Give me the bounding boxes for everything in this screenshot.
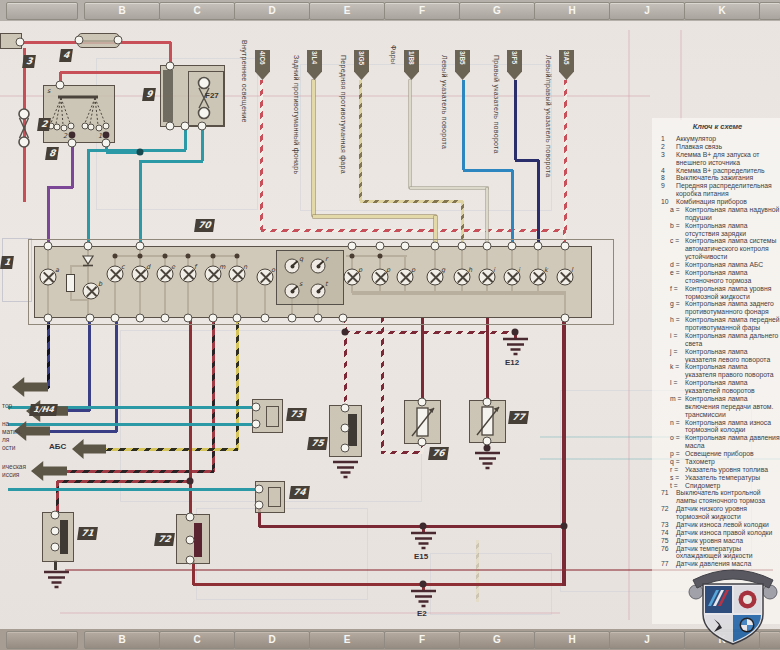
pin-s: s — [299, 281, 302, 288]
pin-k: k — [544, 267, 548, 274]
wire-front-fog — [359, 80, 362, 201]
pin-h: h — [468, 267, 472, 274]
legend-text: Контрольная лампа давления масла — [685, 434, 780, 450]
legend-text: Датчик износа левой колодки — [676, 521, 780, 529]
gauge-t — [311, 284, 326, 299]
wire-rear-fog — [312, 80, 315, 216]
legend-item: m =Контрольная лампа включения передачи … — [670, 395, 780, 419]
terminal — [508, 242, 517, 251]
grid-tab-k: K — [684, 2, 760, 20]
bus-dot — [163, 254, 168, 259]
legend-item: q =Тахометр — [670, 458, 780, 466]
grid-tab-f: F — [384, 2, 460, 20]
wire-run2 — [139, 160, 203, 163]
grid-tab-b: B — [84, 2, 160, 20]
legend-num: 9 — [661, 182, 676, 198]
power-box-bar — [163, 70, 173, 122]
legend-num: l = — [670, 379, 685, 395]
wire-headlamps — [410, 187, 488, 189]
legend-num: m = — [670, 395, 685, 419]
legend-num: k = — [670, 363, 685, 379]
legend-num: s = — [670, 474, 685, 482]
legend-text: Аккумулятор — [676, 135, 780, 143]
junction — [137, 149, 144, 156]
wire-73b — [8, 423, 257, 426]
wire-left-turn — [463, 169, 513, 172]
legend-item: 72Датчик низкого уровня тормозной жидкос… — [661, 505, 780, 521]
pin-s: s — [47, 88, 50, 95]
terminal — [339, 314, 348, 323]
legend-text: Контрольная лампа отсутствия зарядки — [685, 222, 780, 238]
ghost-line — [60, 612, 560, 614]
terminal — [186, 536, 195, 545]
terminal — [51, 543, 60, 552]
wire-71 — [57, 480, 191, 483]
legend-num: 74 — [661, 529, 676, 537]
club-crest-watermark — [686, 556, 780, 648]
legend-item: j =Контрольная лампа указателя левого по… — [670, 348, 780, 364]
legend-num: h = — [670, 316, 685, 332]
legend-text: Контрольная лампа заднего противотуманно… — [685, 300, 780, 316]
wire-run2 — [201, 127, 204, 161]
terminal — [341, 424, 350, 433]
terminal — [75, 36, 84, 45]
legend-item: 74Датчик износа правой колодки — [661, 529, 780, 537]
terminal — [341, 404, 350, 413]
terminal — [51, 511, 60, 520]
legend-item: 10Комбинация приборов — [661, 198, 780, 206]
legend-item: s =Указатель температуры — [670, 474, 780, 482]
wire-right-turn — [514, 80, 517, 160]
legend-text: Выключатель зажигания — [676, 174, 780, 182]
legend-item: r =Указатель уровня топлива — [670, 466, 780, 474]
pin-l: l — [571, 267, 573, 274]
wire-acc — [71, 143, 74, 188]
gauge-q — [285, 259, 300, 274]
legend-item: n =Контрольная лампа износа тормозной ко… — [670, 419, 780, 435]
legend-num: 77 — [661, 560, 676, 568]
component-label-72: 72 — [154, 533, 174, 546]
terminal — [288, 314, 297, 323]
variable-resistor — [408, 402, 438, 442]
pin-m: m — [219, 264, 225, 271]
grid-tab-partial — [6, 631, 78, 649]
terminal — [166, 62, 175, 71]
terminal — [51, 527, 60, 536]
switch-71 — [42, 512, 74, 562]
terminal — [44, 242, 53, 251]
ghost-line — [680, 30, 682, 120]
legend-text: Контрольная лампа надувной подушки — [685, 206, 780, 222]
bus-dot — [138, 254, 143, 259]
wire-77-top — [486, 318, 489, 401]
lamp-b — [83, 283, 100, 300]
wire-e15-bus — [259, 525, 566, 528]
legend-text: Датчик уровня масла — [676, 537, 780, 545]
sensor-72-slot — [194, 523, 202, 557]
legend-text: Клемма B+ для запуска от внешнего источн… — [676, 151, 780, 167]
terminal — [458, 242, 467, 251]
grid-tab-j: J — [609, 2, 685, 20]
legend-num: 2 — [661, 143, 676, 151]
tag-text: 3/L4 — [311, 51, 318, 64]
legend-item: h =Контрольная лампа передней противотум… — [670, 316, 780, 332]
terminal — [348, 242, 357, 251]
legend-num: a = — [670, 206, 685, 222]
bus-dot — [235, 254, 240, 259]
legend-num: 1 — [661, 135, 676, 143]
wire-rear-fog — [313, 215, 436, 218]
pin-j: j — [518, 267, 520, 274]
switch-contacts — [43, 85, 115, 143]
wire-ign-feed — [60, 71, 161, 74]
wire-asc — [46, 430, 117, 433]
terminal — [314, 314, 323, 323]
legend-text: Освещение приборов — [685, 450, 780, 458]
legend-text: Контрольная лампа указателей поворотов — [685, 379, 780, 395]
tag-text: 3/F5 — [511, 51, 518, 64]
pin-p1: p — [358, 267, 362, 274]
legend-num: 8 — [661, 174, 676, 182]
terminal — [561, 242, 570, 251]
wire-right-turn — [537, 160, 540, 246]
wire-main-drop — [562, 318, 566, 586]
legend-item: 1Аккумулятор — [661, 135, 780, 143]
wire-74 — [8, 488, 260, 491]
terminal — [181, 122, 190, 131]
legend-text: Контрольная лампа износа тормозной колод… — [685, 419, 780, 435]
legend-text: Контрольная лампа указателя левого повор… — [685, 348, 780, 364]
legend-num: p = — [670, 450, 685, 458]
pin-n: n — [243, 264, 247, 271]
legend-item: 4Клемма B+ распределитель — [661, 167, 780, 175]
fusible-link-2 — [16, 108, 32, 148]
legend-text: Плавкая связь — [676, 143, 780, 151]
terminal — [44, 314, 53, 323]
grid-tab-g: G — [459, 2, 535, 20]
offpage-arrow-abs — [72, 439, 106, 459]
legend-num: 3 — [661, 151, 676, 167]
label-interior-light: Внутреннее освещение — [240, 40, 249, 123]
grid-tab-e: E — [309, 2, 385, 20]
legend-num: d = — [670, 261, 685, 269]
wire-abs — [236, 318, 239, 450]
ref-tag-1h4: 1/Н4 — [29, 404, 57, 416]
wire-right-turn — [515, 159, 539, 162]
legend-item: 9Передняя распределительная коробка пита… — [661, 182, 780, 198]
pin-c: c — [121, 264, 125, 271]
grid-tab-g: G — [459, 631, 535, 649]
ghost-line — [476, 540, 479, 602]
tag-text: 4/C6 — [259, 51, 266, 65]
legend-text: Спидометр — [685, 482, 780, 490]
bus-dot — [350, 254, 355, 259]
terminal — [418, 398, 427, 407]
legend-num: 73 — [661, 521, 676, 529]
legend-item: o =Контрольная лампа давления масла — [670, 434, 780, 450]
label-headlamps: Фары — [389, 45, 398, 64]
grid-tab-d: D — [234, 2, 310, 20]
terminal — [255, 485, 264, 494]
ground-77 — [474, 451, 501, 474]
pin-e: e — [171, 264, 175, 271]
grid-tab-f: F — [384, 631, 460, 649]
label-left-turn: Левый указатель поворота — [440, 55, 449, 149]
ground-e12 — [502, 337, 529, 360]
legend-item: l =Контрольная лампа указателей поворото… — [670, 379, 780, 395]
legend-text: Контрольная лампа дальнего света — [685, 332, 780, 348]
legend-item: 8Выключатель зажигания — [661, 174, 780, 182]
terminal — [341, 444, 350, 453]
legend-item: 3Клемма B+ для запуска от внешнего источ… — [661, 151, 780, 167]
junction-e15 — [420, 523, 427, 530]
wire-headlamps — [486, 188, 488, 246]
terminal — [16, 38, 25, 47]
pin-p2: p — [386, 267, 390, 274]
terminal — [483, 437, 492, 446]
bus-dot — [186, 254, 191, 259]
text-fragment: ическая — [2, 463, 26, 471]
wire-e2-bus — [193, 583, 566, 586]
legend-num: t = — [670, 482, 685, 490]
pin-b: b — [98, 281, 102, 288]
text-fragment: на — [2, 420, 9, 428]
wire-run1 — [87, 150, 90, 246]
terminal — [483, 398, 492, 407]
wire-76-bot — [381, 318, 384, 453]
legend-text: Контрольная лампа стояночного тормоза — [685, 269, 780, 285]
legend-num: j = — [670, 348, 685, 364]
terminal — [252, 403, 261, 412]
wire-1h4 — [88, 318, 91, 411]
junction — [187, 478, 194, 485]
legend-num: i = — [670, 332, 685, 348]
terminal — [209, 314, 218, 323]
gauge-r — [311, 259, 326, 274]
wire-left-turn — [462, 80, 465, 170]
legend-text: Указатель уровня топлива — [685, 466, 780, 474]
pin-d: d — [146, 264, 150, 271]
gauge-s — [285, 284, 300, 299]
legend-item: 2Плавкая связь — [661, 143, 780, 151]
text-fragment: ости — [2, 444, 15, 452]
legend-text: Выключатель контрольной лампы стояночног… — [676, 489, 780, 505]
legend-text: Контрольная лампа указателя правого пово… — [685, 363, 780, 379]
legend-item: a =Контрольная лампа надувной подушки — [670, 206, 780, 222]
legend-item: b =Контрольная лампа отсутствия зарядки — [670, 222, 780, 238]
tag-text: 3/B5 — [459, 51, 466, 65]
grid-tab-partial — [6, 2, 78, 20]
wire-run2 — [139, 161, 142, 246]
ground-label-e2: E2 — [417, 609, 427, 618]
ghost-line — [628, 30, 630, 620]
terminal — [136, 242, 145, 251]
legend-text: Контрольная лампа передней противотуманн… — [685, 316, 780, 332]
switch-71-slot — [60, 520, 68, 554]
wire-interior-light — [260, 80, 263, 230]
wire-lr-turn — [564, 80, 567, 230]
legend-text: Тахометр — [685, 458, 780, 466]
component-label-75: 75 — [307, 437, 327, 450]
text-fragment: иссия — [2, 471, 19, 479]
terminal — [483, 242, 492, 251]
diode — [81, 255, 95, 267]
legend-num: q = — [670, 458, 685, 466]
ground-label-e15: E15 — [414, 552, 428, 561]
text-fragment: тор — [2, 402, 12, 410]
component-label-8: 8 — [45, 147, 59, 160]
ref-tag-lrturn: 3/A5 — [559, 50, 574, 80]
legend-item: 75Датчик уровня масла — [661, 537, 780, 545]
legend-text: Комбинация приборов — [676, 198, 780, 206]
label-rear-fog: Задний противотуманный фонарь — [292, 55, 301, 174]
resistor — [66, 274, 75, 292]
legend-num: b = — [670, 222, 685, 238]
label-front-fog: Передняя противотуманная фара — [339, 55, 348, 174]
legend-text: Указатель температуры — [685, 474, 780, 482]
legend-item: d =Контрольная лампа АБС — [670, 261, 780, 269]
legend-num: r = — [670, 466, 685, 474]
legend-item: i =Контрольная лампа дальнего света — [670, 332, 780, 348]
legend-item: 73Датчик износа левой колодки — [661, 521, 780, 529]
ground-71 — [43, 570, 70, 593]
terminal — [431, 242, 440, 251]
legend-num: f = — [670, 285, 685, 301]
legend-num: o = — [670, 434, 685, 450]
legend-text: Клемма B+ распределитель — [676, 167, 780, 175]
terminal — [161, 314, 170, 323]
grid-tab-b: B — [84, 631, 160, 649]
legend-num: e = — [670, 269, 685, 285]
legend-num: 71 — [661, 489, 676, 505]
legend-item: 71Выключатель контрольной лампы стояночн… — [661, 489, 780, 505]
pin-g: g — [441, 267, 445, 274]
pin-2: 2 — [63, 133, 67, 140]
junction-main — [561, 523, 568, 530]
grid-tab-h: H — [534, 631, 610, 649]
wire-bus-red-white — [261, 229, 566, 232]
grid-tab-c: C — [159, 2, 235, 20]
component-label-77: 77 — [508, 411, 528, 424]
junction-e2 — [420, 581, 427, 588]
grid-tab-e: E — [309, 631, 385, 649]
grid-tab-d: D — [234, 631, 310, 649]
terminal — [86, 314, 95, 323]
wire-trans — [65, 470, 214, 473]
component-label-74: 74 — [289, 486, 309, 499]
wire-abs — [101, 448, 238, 451]
wire-76-bot — [381, 451, 423, 454]
terminal — [84, 242, 93, 251]
legend-text: Датчик износа правой колодки — [676, 529, 780, 537]
tag-text: 1/B8 — [408, 51, 415, 65]
terminal — [56, 81, 65, 90]
terminal — [561, 314, 570, 323]
abs-label: АБС — [49, 442, 66, 451]
wire-headlamps — [409, 80, 411, 188]
tag-text: 3/A5 — [563, 51, 570, 65]
pin-p3: p — [411, 267, 415, 274]
legend-num: n = — [670, 419, 685, 435]
grid-tab-c: C — [159, 631, 235, 649]
sensor-74-notch — [268, 487, 281, 507]
legend-item: f =Контрольная лампа уровня тормозной жи… — [670, 285, 780, 301]
legend-item: p =Освещение приборов — [670, 450, 780, 458]
label-right-turn: Правый указатель поворота — [492, 55, 501, 154]
legend-num: 10 — [661, 198, 676, 206]
text-fragment: ля — [2, 436, 9, 444]
bus-dot — [211, 254, 216, 259]
legend-title: Ключ к схеме — [661, 122, 774, 132]
terminal — [68, 139, 77, 148]
legend-num: 75 — [661, 537, 676, 545]
legend-text: Контрольная лампа системы автоматическог… — [685, 237, 780, 261]
wire-76-top — [421, 318, 424, 401]
terminal — [186, 513, 195, 522]
terminal — [418, 438, 427, 447]
component-label-76: 76 — [428, 447, 448, 460]
terminal — [198, 122, 207, 131]
component-label-2: 2 — [37, 118, 51, 131]
junction-e12 — [512, 329, 519, 336]
legend-num: 72 — [661, 505, 676, 521]
component-label-3: 3 — [22, 55, 36, 68]
bus-dot — [113, 254, 118, 259]
wire-acc — [47, 187, 50, 246]
component-label-9: 9 — [142, 88, 156, 101]
junction-75 — [342, 329, 349, 336]
legend-text: Передняя распределительная коробка питан… — [676, 182, 780, 198]
terminal — [261, 314, 270, 323]
variable-resistor — [473, 401, 503, 441]
lamp-a — [40, 269, 57, 286]
legend-num: g = — [670, 300, 685, 316]
wire-front-fog — [360, 200, 463, 203]
sensor-75-slot — [348, 414, 357, 446]
label-lr-turn: Левый/правый указатель поворота — [544, 55, 553, 177]
terminal — [186, 556, 195, 565]
component-label-1: 1 — [0, 256, 14, 269]
terminal — [401, 242, 410, 251]
legend-item: k =Контрольная лампа указателя правого п… — [670, 363, 780, 379]
bus-dot — [378, 254, 383, 259]
legend-text: Контрольная лампа включения передачи авт… — [685, 395, 780, 419]
legend-item: c =Контрольная лампа системы автоматичес… — [670, 237, 780, 261]
sensor-73-notch — [266, 406, 279, 427]
terminal — [376, 242, 385, 251]
pin-o: o — [271, 267, 275, 274]
wire-e12-bus — [345, 331, 516, 334]
pin-a: a — [55, 267, 59, 274]
terminal — [166, 122, 175, 131]
terminal — [252, 420, 261, 429]
terminal — [534, 242, 543, 251]
grid-tab-partial — [759, 2, 780, 20]
component-label-73: 73 — [286, 408, 306, 421]
pin-i: i — [493, 267, 495, 274]
offpage-arrow-trans — [31, 461, 67, 481]
component-label-70: 70 — [194, 219, 214, 232]
pin-q: q — [299, 256, 303, 263]
pin-1: 1 — [98, 133, 102, 140]
wire-acc — [47, 186, 73, 189]
terminal — [102, 139, 111, 148]
terminal — [184, 314, 193, 323]
component-label-4: 4 — [59, 49, 73, 62]
legend-item: e =Контрольная лампа стояночного тормоза — [670, 269, 780, 285]
wire-alt — [47, 318, 50, 388]
ghost-box — [196, 508, 368, 600]
